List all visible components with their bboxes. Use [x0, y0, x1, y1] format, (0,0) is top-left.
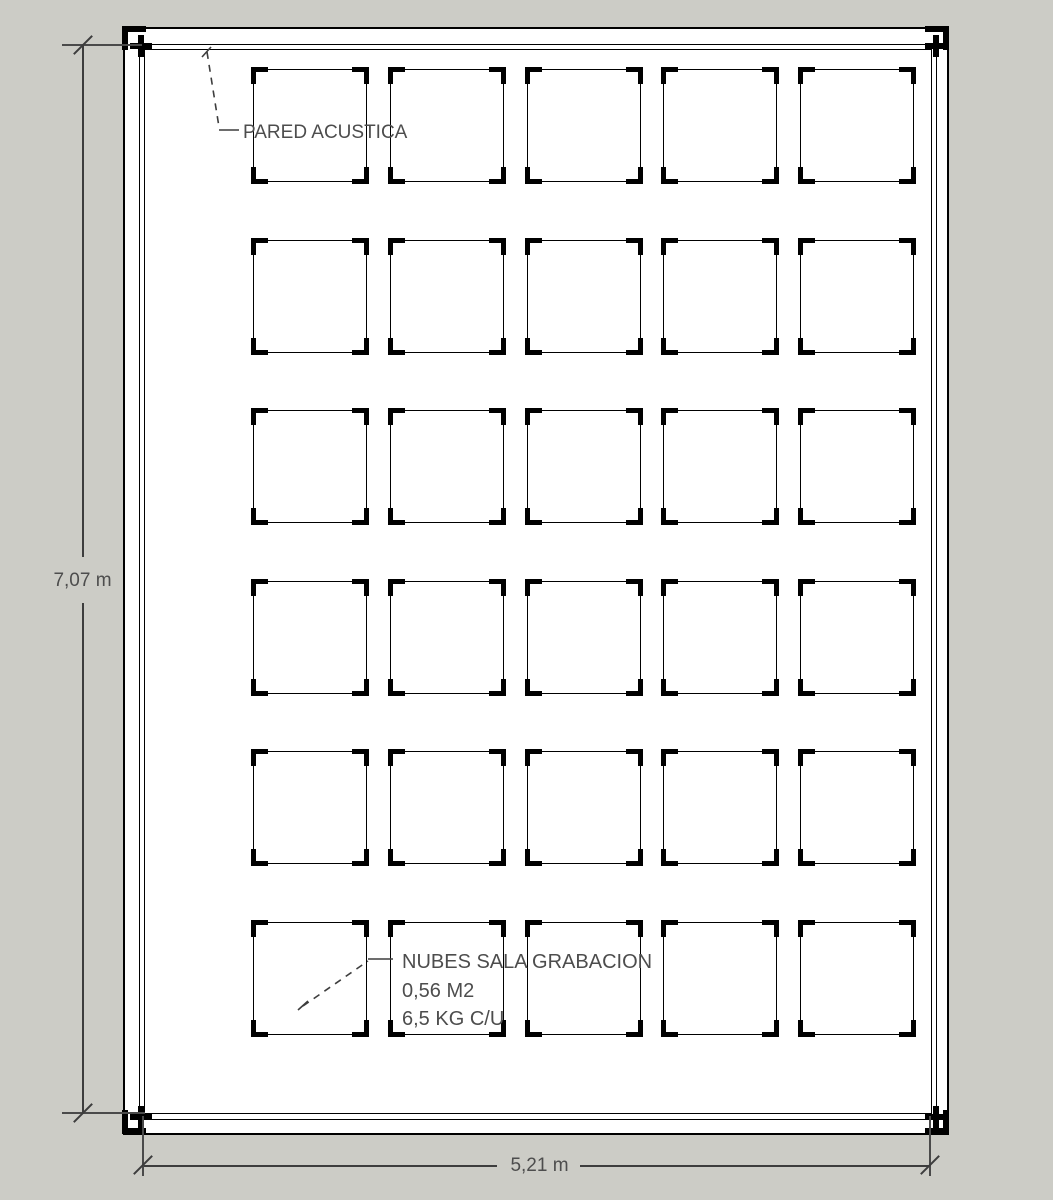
width-dimension-line[interactable] [144, 1165, 497, 1167]
panel-corner-mark [388, 749, 405, 766]
panel-corner-mark [251, 67, 268, 84]
dim-extension-line [62, 44, 142, 46]
panel-corner-mark [762, 920, 779, 937]
panel-corner-mark [661, 579, 678, 596]
acoustic-cloud-panel[interactable] [663, 581, 777, 694]
panel-corner-mark [899, 238, 916, 255]
panel-corner-mark [661, 679, 678, 696]
panel-corner-mark [626, 67, 643, 84]
panel-corner-mark [352, 679, 369, 696]
acoustic-cloud-panel[interactable] [253, 581, 367, 694]
panel-corner-mark [762, 238, 779, 255]
panel-corner-mark [489, 338, 506, 355]
panel-corner-mark [525, 849, 542, 866]
panel-corner-mark [899, 1020, 916, 1037]
panel-corner-mark [899, 167, 916, 184]
panel-corner-mark [489, 679, 506, 696]
panel-corner-mark [352, 238, 369, 255]
panel-corner-mark [251, 679, 268, 696]
panel-corner-mark [251, 579, 268, 596]
panel-corner-mark [899, 749, 916, 766]
panel-corner-mark [525, 508, 542, 525]
acoustic-cloud-panel[interactable] [527, 240, 641, 353]
panel-corner-mark [251, 338, 268, 355]
panel-corner-mark [525, 67, 542, 84]
panel-corner-mark [388, 238, 405, 255]
acoustic-cloud-panel[interactable] [800, 751, 914, 864]
acoustic-cloud-panel[interactable] [800, 581, 914, 694]
panel-corner-mark [525, 920, 542, 937]
acoustic-cloud-panel[interactable] [800, 410, 914, 523]
panel-corner-mark [251, 167, 268, 184]
panel-corner-mark [762, 579, 779, 596]
panel-corner-mark [352, 920, 369, 937]
panel-corner-mark [388, 679, 405, 696]
panel-corner-mark [251, 920, 268, 937]
panel-corner-mark [798, 238, 815, 255]
panel-corner-mark [388, 579, 405, 596]
height-dimension-line[interactable] [82, 603, 84, 1114]
panel-corner-mark [798, 679, 815, 696]
panel-corner-mark [661, 849, 678, 866]
panel-corner-mark [762, 749, 779, 766]
panel-corner-mark [762, 338, 779, 355]
panel-corner-mark [661, 1020, 678, 1037]
cloud-label-line2: 0,56 M2 [402, 977, 652, 1006]
acoustic-cloud-panel[interactable] [390, 581, 504, 694]
panel-corner-mark [388, 920, 405, 937]
panel-corner-mark [798, 338, 815, 355]
panel-corner-mark [798, 579, 815, 596]
panel-corner-mark [762, 849, 779, 866]
acoustic-cloud-panel[interactable] [663, 410, 777, 523]
panel-corner-mark [525, 679, 542, 696]
cloud-label-line1: NUBES SALA GRABACION [402, 948, 652, 977]
panel-corner-mark [661, 508, 678, 525]
panel-corner-mark [626, 408, 643, 425]
panel-corner-mark [352, 167, 369, 184]
panel-corner-mark [661, 67, 678, 84]
panel-corner-mark [489, 238, 506, 255]
height-dimension-line[interactable] [82, 45, 84, 557]
panel-corner-mark [525, 167, 542, 184]
panel-corner-mark [899, 579, 916, 596]
acoustic-cloud-panel[interactable] [253, 751, 367, 864]
panel-corner-mark [661, 749, 678, 766]
acoustic-cloud-panel[interactable] [527, 69, 641, 182]
panel-corner-mark [762, 67, 779, 84]
panel-corner-mark [525, 238, 542, 255]
panel-corner-mark [388, 67, 405, 84]
panel-corner-mark [899, 338, 916, 355]
panel-corner-mark [762, 1020, 779, 1037]
panel-corner-mark [661, 408, 678, 425]
acoustic-cloud-panel[interactable] [390, 751, 504, 864]
panel-corner-mark [762, 508, 779, 525]
panel-corner-mark [489, 920, 506, 937]
panel-corner-mark [899, 508, 916, 525]
panel-corner-mark [352, 1020, 369, 1037]
drawing-canvas[interactable]: PARED ACUSTICA NUBES SALA GRABACION 0,56… [0, 0, 1053, 1200]
acoustic-cloud-panel[interactable] [253, 410, 367, 523]
acoustic-cloud-panel[interactable] [390, 240, 504, 353]
panel-corner-mark [798, 849, 815, 866]
acoustic-cloud-panel[interactable] [527, 751, 641, 864]
panel-corner-mark [489, 579, 506, 596]
panel-corner-mark [798, 408, 815, 425]
panel-corner-mark [525, 408, 542, 425]
panel-corner-mark [798, 1020, 815, 1037]
acoustic-cloud-panel[interactable] [253, 922, 367, 1035]
panel-corner-mark [251, 238, 268, 255]
panel-corner-mark [762, 408, 779, 425]
panel-corner-mark [899, 679, 916, 696]
panel-corner-mark [798, 67, 815, 84]
acoustic-cloud-panel[interactable] [663, 69, 777, 182]
height-dimension-text[interactable]: 7,07 m [36, 570, 129, 592]
panel-corner-mark [352, 849, 369, 866]
acoustic-cloud-panel[interactable] [390, 410, 504, 523]
panel-corner-mark [661, 920, 678, 937]
panel-corner-mark [525, 749, 542, 766]
panel-corner-mark [626, 508, 643, 525]
acoustic-cloud-panel[interactable] [800, 69, 914, 182]
panel-corner-mark [798, 749, 815, 766]
acoustic-cloud-panel[interactable] [663, 240, 777, 353]
panel-corner-mark [626, 849, 643, 866]
cloud-label[interactable]: NUBES SALA GRABACION 0,56 M2 6,5 KG C/U [402, 948, 652, 1034]
panel-corner-mark [489, 849, 506, 866]
panel-corner-mark [352, 749, 369, 766]
panel-corner-mark [388, 338, 405, 355]
dim-extension-line [62, 1112, 145, 1114]
panel-corner-mark [489, 408, 506, 425]
panel-corner-mark [798, 920, 815, 937]
panel-corner-mark [899, 67, 916, 84]
cloud-label-line3: 6,5 KG C/U [402, 1005, 652, 1034]
panel-corner-mark [352, 338, 369, 355]
panel-corner-mark [388, 167, 405, 184]
width-dimension-text[interactable]: 5,21 m [493, 1155, 586, 1177]
acoustic-cloud-panel[interactable] [663, 922, 777, 1035]
panel-corner-mark [525, 338, 542, 355]
panel-corner-mark [661, 338, 678, 355]
panel-corner-mark [352, 408, 369, 425]
panel-corner-mark [352, 579, 369, 596]
panel-corner-mark [626, 749, 643, 766]
acoustic-cloud-panel[interactable] [663, 751, 777, 864]
panel-corner-mark [251, 749, 268, 766]
panel-corner-mark [762, 167, 779, 184]
panel-corner-mark [661, 238, 678, 255]
panel-corner-mark [798, 167, 815, 184]
panel-corner-mark [489, 167, 506, 184]
panel-corner-mark [388, 849, 405, 866]
panel-corner-mark [626, 579, 643, 596]
acoustic-cloud-panel[interactable] [800, 240, 914, 353]
panel-corner-mark [489, 749, 506, 766]
panel-corner-mark [626, 238, 643, 255]
panel-corner-mark [661, 167, 678, 184]
panel-corner-mark [388, 408, 405, 425]
panel-corner-mark [762, 679, 779, 696]
panel-corner-mark [489, 67, 506, 84]
panel-corner-mark [525, 579, 542, 596]
acoustic-cloud-panel[interactable] [527, 410, 641, 523]
panel-corner-mark [251, 1020, 268, 1037]
panel-corner-mark [626, 679, 643, 696]
panel-corner-mark [352, 67, 369, 84]
panel-corner-mark [388, 508, 405, 525]
panel-corner-mark [626, 920, 643, 937]
panel-corner-mark [626, 167, 643, 184]
acoustic-cloud-panel[interactable] [253, 240, 367, 353]
panel-corner-mark [489, 508, 506, 525]
panel-corner-mark [251, 408, 268, 425]
panel-corner-mark [899, 920, 916, 937]
panel-corner-mark [899, 408, 916, 425]
acoustic-wall-label[interactable]: PARED ACUSTICA [243, 122, 407, 144]
panel-corner-mark [626, 338, 643, 355]
width-dimension-line[interactable] [580, 1165, 930, 1167]
panel-corner-mark [352, 508, 369, 525]
panel-corner-mark [899, 849, 916, 866]
acoustic-cloud-panel[interactable] [800, 922, 914, 1035]
acoustic-cloud-panel[interactable] [527, 581, 641, 694]
panel-corner-mark [251, 849, 268, 866]
panel-corner-mark [251, 508, 268, 525]
panel-corner-mark [798, 508, 815, 525]
